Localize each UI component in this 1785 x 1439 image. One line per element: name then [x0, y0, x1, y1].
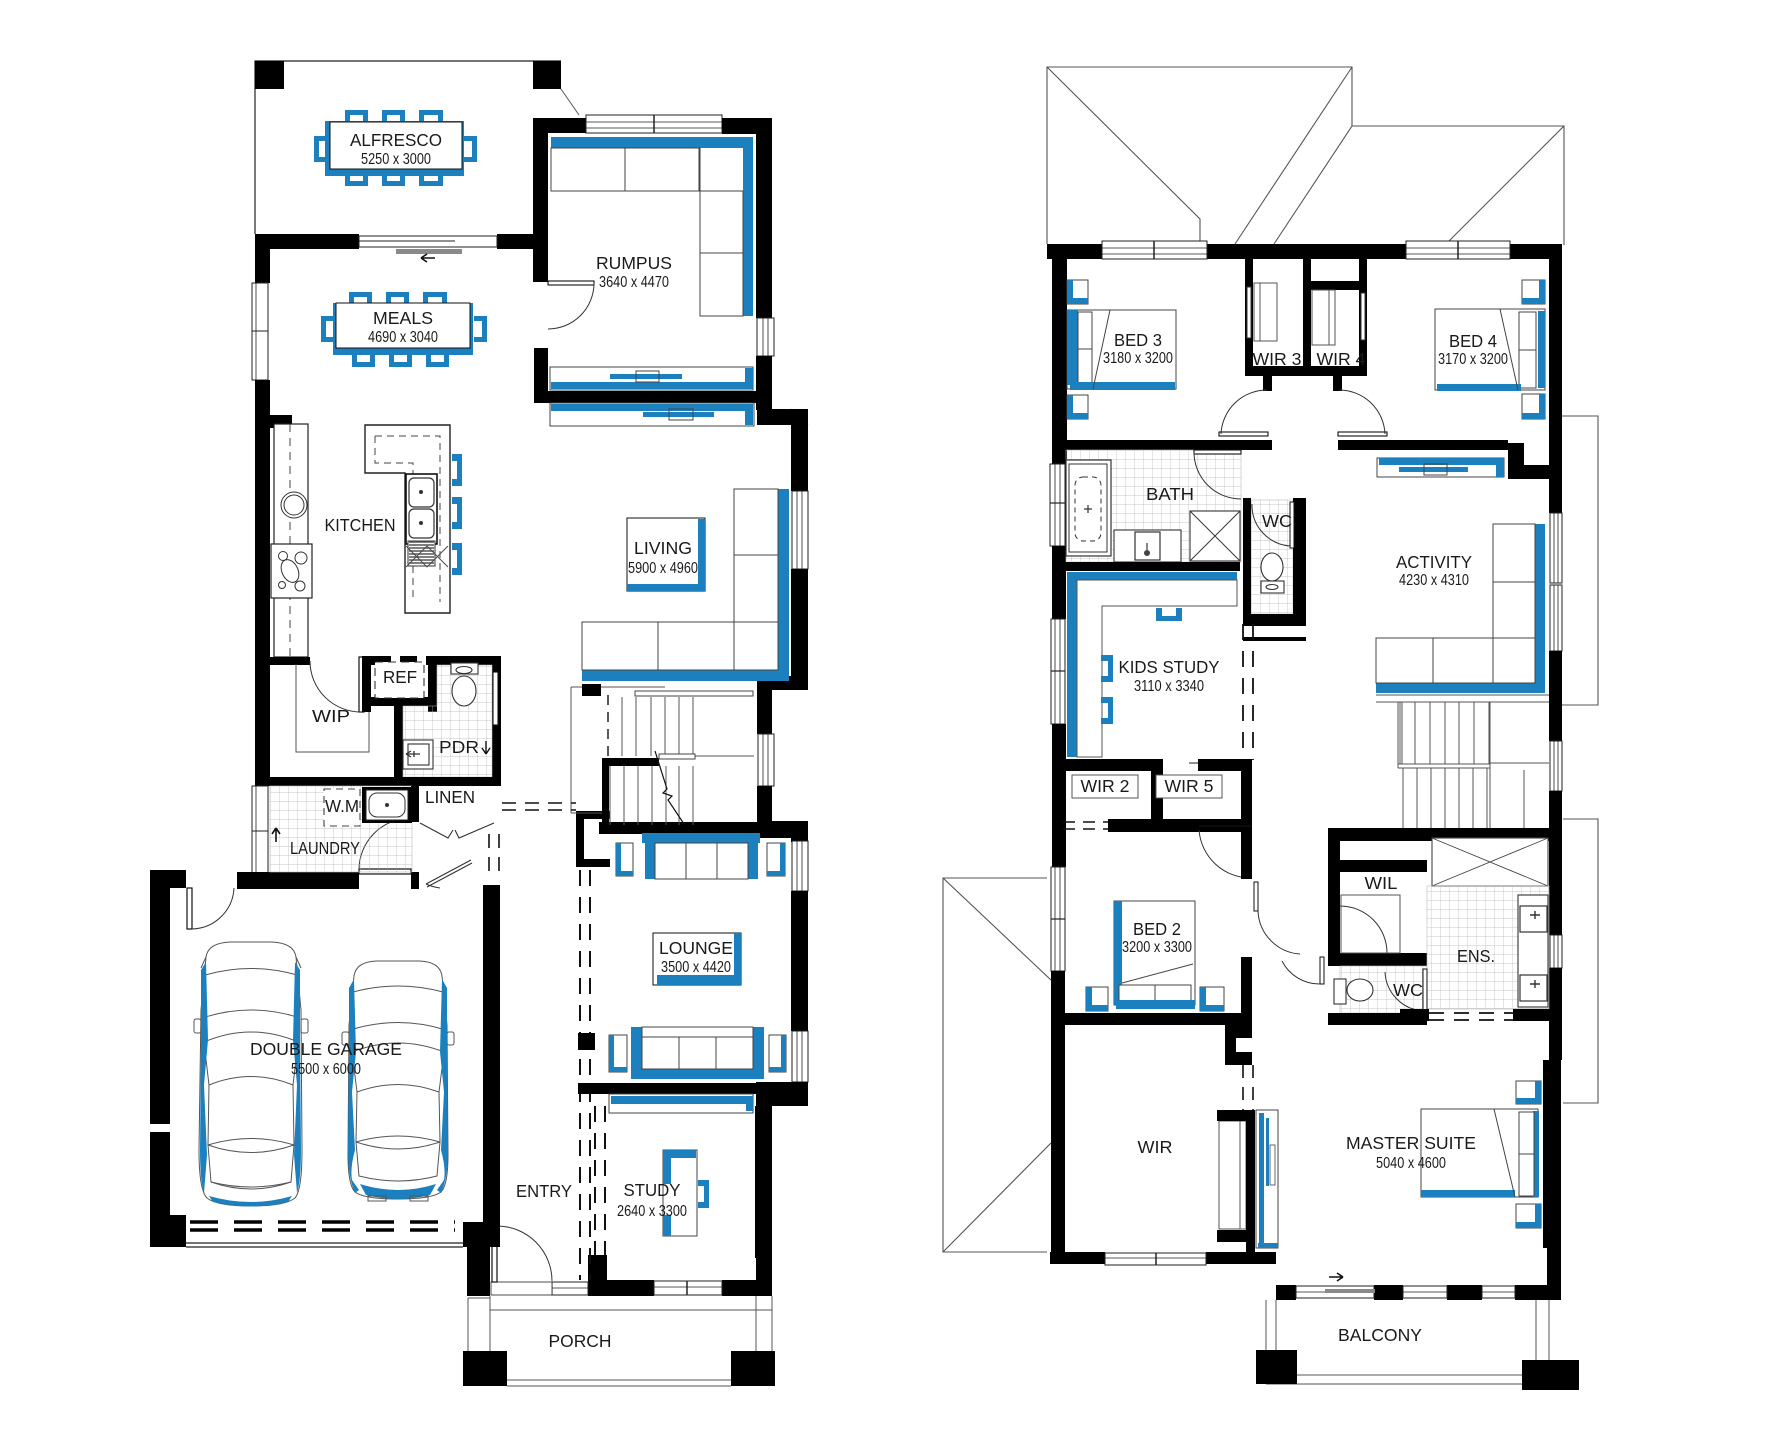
- svg-text:PORCH: PORCH: [549, 1331, 612, 1351]
- svg-text:LOUNGE: LOUNGE: [659, 938, 733, 958]
- svg-text:WIR 2: WIR 2: [1081, 776, 1130, 796]
- svg-text:ACTIVITY: ACTIVITY: [1396, 552, 1472, 572]
- svg-text:W.M: W.M: [325, 796, 359, 816]
- svg-text:WC: WC: [1393, 980, 1423, 1000]
- svg-text:5250 x 3000: 5250 x 3000: [361, 151, 431, 168]
- svg-text:3640 x 4470: 3640 x 4470: [599, 274, 669, 291]
- svg-text:BATH: BATH: [1146, 484, 1194, 504]
- svg-text:BED 3: BED 3: [1114, 330, 1162, 350]
- svg-text:WIR 3: WIR 3: [1253, 349, 1302, 369]
- svg-text:3200 x 3300: 3200 x 3300: [1122, 939, 1192, 956]
- svg-text:REF: REF: [383, 667, 417, 687]
- svg-text:RUMPUS: RUMPUS: [596, 253, 672, 273]
- svg-text:4230 x 4310: 4230 x 4310: [1399, 572, 1469, 589]
- svg-text:ENS.: ENS.: [1457, 946, 1495, 966]
- svg-text:ALFRESCO: ALFRESCO: [350, 130, 442, 150]
- svg-text:5500 x 6000: 5500 x 6000: [291, 1061, 361, 1078]
- svg-text:4690 x 3040: 4690 x 3040: [368, 329, 438, 346]
- svg-text:BED 2: BED 2: [1133, 919, 1181, 939]
- svg-text:5040 x 4600: 5040 x 4600: [1376, 1155, 1446, 1172]
- svg-text:WIL: WIL: [1365, 873, 1398, 893]
- svg-text:3180 x 3200: 3180 x 3200: [1103, 350, 1173, 367]
- svg-text:PDR: PDR: [439, 737, 479, 757]
- svg-text:DOUBLE GARAGE: DOUBLE GARAGE: [250, 1039, 402, 1059]
- svg-text:KIDS STUDY: KIDS STUDY: [1119, 657, 1220, 677]
- svg-text:STUDY: STUDY: [624, 1180, 681, 1200]
- svg-text:3500 x 4420: 3500 x 4420: [661, 959, 731, 976]
- svg-text:ENTRY: ENTRY: [516, 1181, 572, 1201]
- svg-text:MEALS: MEALS: [373, 308, 433, 328]
- svg-text:5900 x 4960: 5900 x 4960: [628, 560, 698, 577]
- svg-text:LIVING: LIVING: [634, 538, 692, 558]
- svg-text:LINEN: LINEN: [425, 787, 475, 807]
- svg-text:WIP: WIP: [312, 706, 350, 726]
- svg-text:BALCONY: BALCONY: [1338, 1325, 1422, 1345]
- svg-text:WIR 4: WIR 4: [1317, 349, 1366, 369]
- svg-text:BED 4: BED 4: [1449, 331, 1497, 351]
- svg-text:WC: WC: [1262, 511, 1292, 531]
- svg-text:3110 x 3340: 3110 x 3340: [1134, 678, 1204, 695]
- svg-text:LAUNDRY: LAUNDRY: [290, 838, 360, 858]
- svg-text:WIR: WIR: [1138, 1137, 1173, 1157]
- svg-text:3170 x 3200: 3170 x 3200: [1438, 351, 1508, 368]
- svg-text:2640 x 3300: 2640 x 3300: [617, 1203, 687, 1220]
- svg-text:MASTER SUITE: MASTER SUITE: [1346, 1133, 1476, 1153]
- svg-text:WIR 5: WIR 5: [1165, 776, 1214, 796]
- svg-text:KITCHEN: KITCHEN: [325, 515, 396, 535]
